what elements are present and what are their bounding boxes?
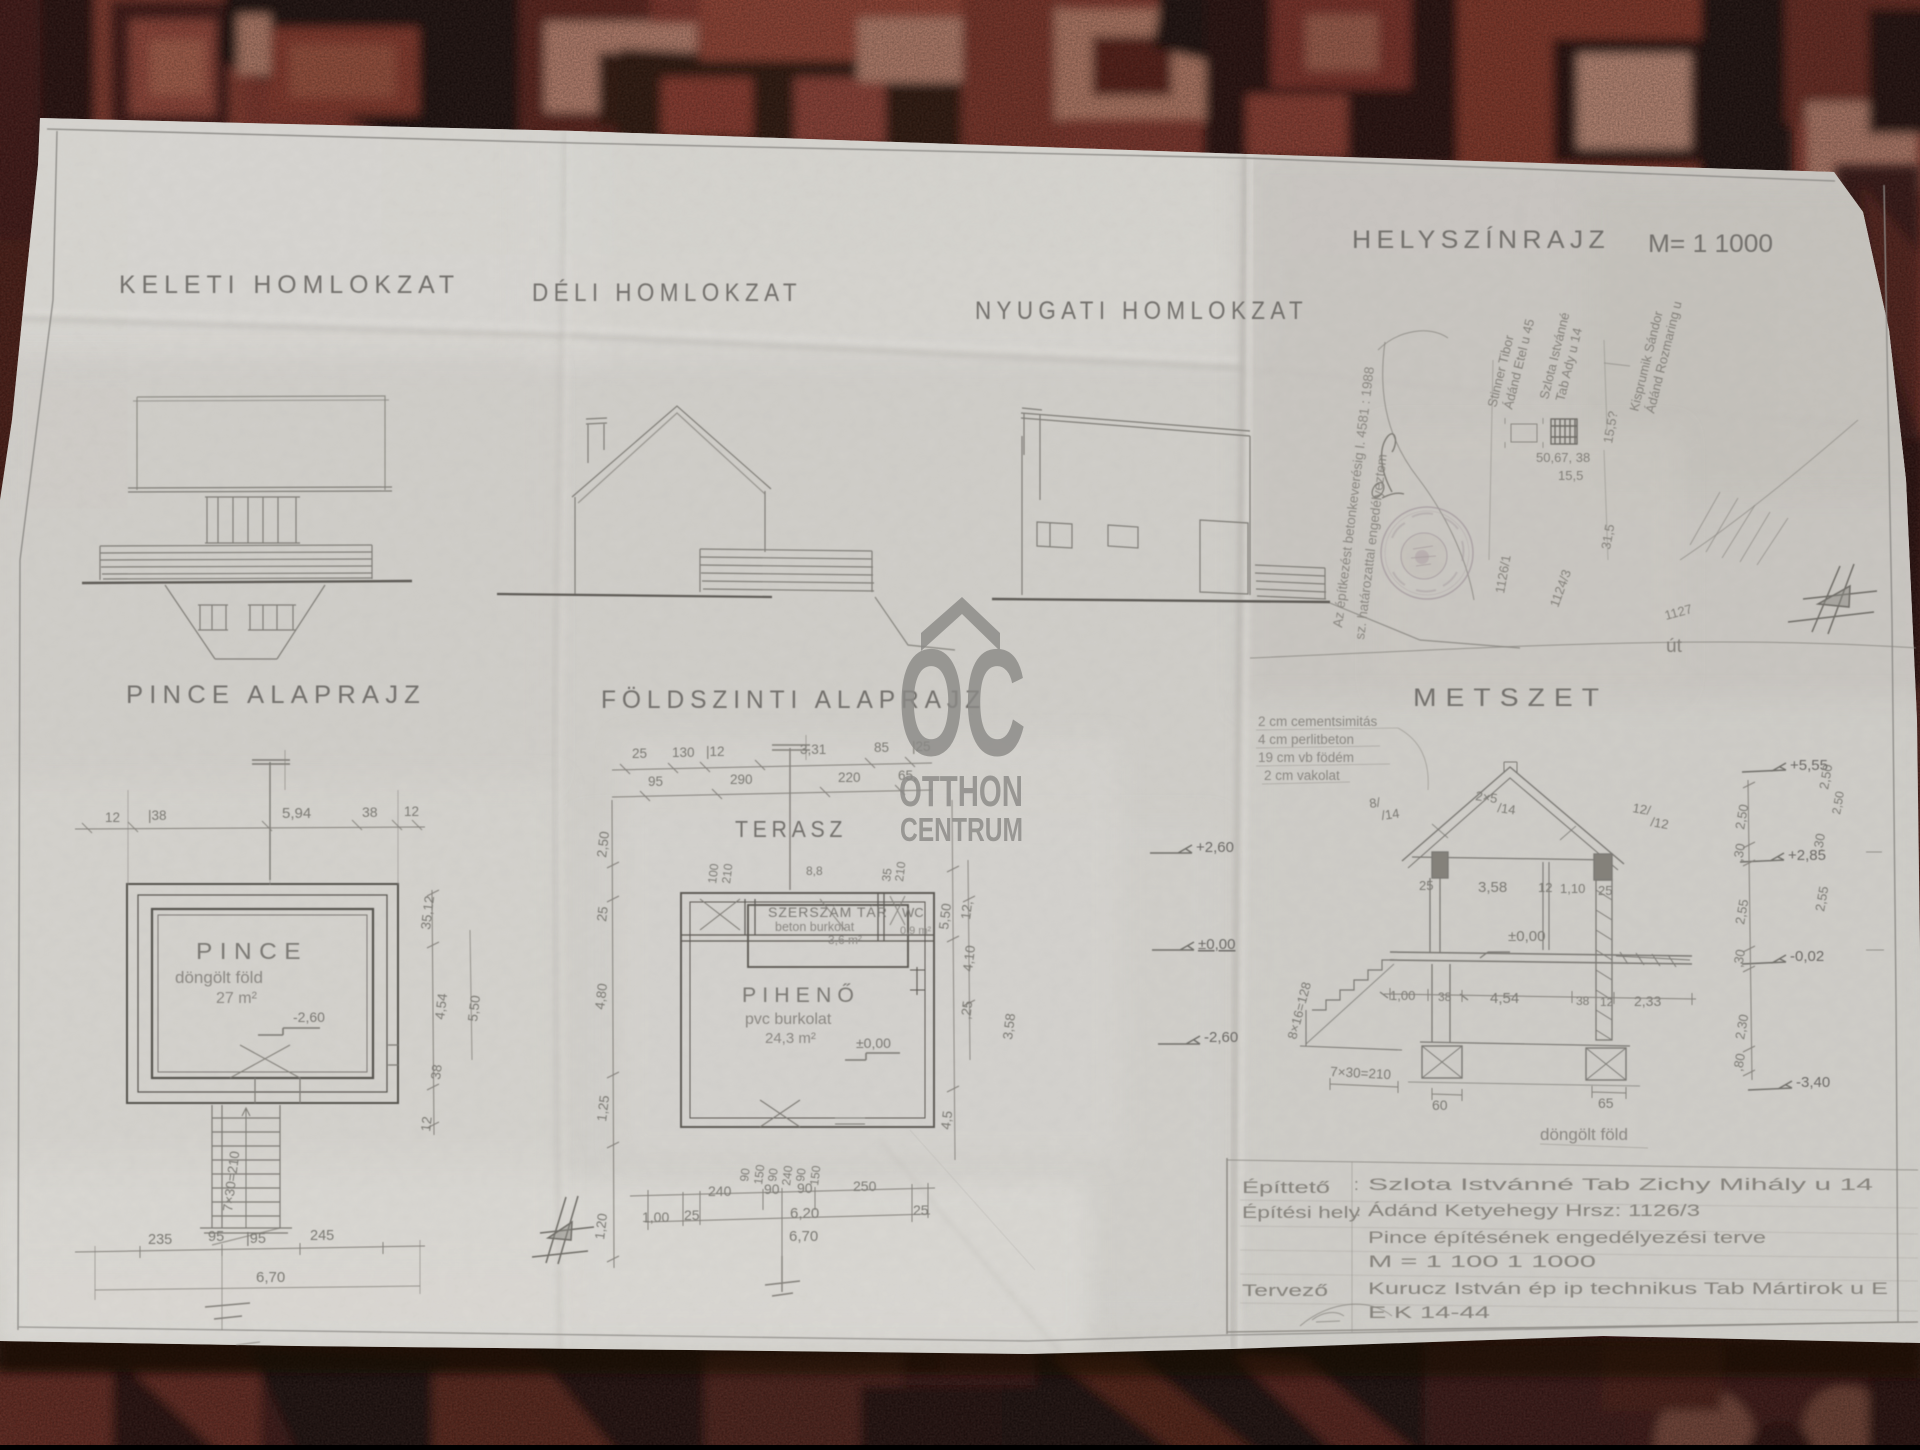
- svg-text:döngölt föld: döngölt föld: [1540, 1125, 1628, 1144]
- svg-text:60: 60: [1432, 1097, 1448, 1113]
- svg-text:12: 12: [404, 804, 419, 819]
- svg-text:döngölt föld: döngölt föld: [175, 968, 263, 987]
- svg-text:95: 95: [208, 1229, 224, 1245]
- svg-text:,30: ,30: [1730, 948, 1748, 968]
- svg-text::: :: [1354, 1175, 1359, 1194]
- svg-text:290: 290: [730, 772, 753, 787]
- svg-text:±0,00: ±0,00: [856, 1035, 891, 1051]
- svg-text:±0,00: ±0,00: [1508, 928, 1545, 945]
- svg-text:,30: ,30: [1730, 842, 1748, 862]
- svg-text:90: 90: [765, 1167, 781, 1182]
- svg-text:0,9 m²: 0,9 m²: [900, 925, 932, 937]
- svg-text:Kurucz István ép ip techniku: Kurucz István ép ip technikus Tab Mártir…: [1368, 1279, 1888, 1298]
- svg-text:25: 25: [1419, 878, 1433, 893]
- svg-text:7×30=210: 7×30=210: [1330, 1064, 1392, 1082]
- svg-text:Szlota Istvánné Tab Zichy: Szlota Istvánné Tab Zichy Mihály u 14: [1368, 1175, 1873, 1194]
- svg-text:1,00: 1,00: [642, 1209, 669, 1225]
- svg-text:27 m²: 27 m²: [216, 990, 258, 1007]
- svg-text:|95: |95: [246, 1231, 266, 1247]
- svg-text:Pince építésének engedélyezési: Pince építésének engedélyezési terve: [1368, 1228, 1766, 1247]
- svg-text:,25: ,25: [958, 1000, 975, 1020]
- svg-text:beton burkolat: beton burkolat: [775, 920, 855, 934]
- svg-text:OC: OC: [898, 618, 1026, 788]
- svg-text:5,50: 5,50: [465, 994, 483, 1022]
- svg-text:4 cm perlitbeton: 4 cm perlitbeton: [1258, 732, 1354, 747]
- svg-text:5,50: 5,50: [936, 902, 954, 930]
- svg-text:/14: /14: [1497, 800, 1517, 817]
- svg-text:4,10: 4,10: [960, 944, 978, 972]
- svg-text:/14: /14: [1380, 806, 1400, 823]
- svg-text:1,10: 1,10: [1560, 881, 1585, 896]
- svg-text:8,8: 8,8: [806, 864, 823, 878]
- svg-text:2 cm cementsimitás: 2 cm cementsimitás: [1258, 714, 1378, 729]
- svg-text:NYUGATI HOMLOKZAT: NYUGATI HOMLOKZAT: [975, 297, 1308, 325]
- svg-text:19 cm vb födém: 19 cm vb födém: [1258, 750, 1354, 765]
- svg-text:,80: ,80: [1730, 1052, 1748, 1072]
- svg-text:12/: 12/: [1631, 800, 1652, 818]
- svg-text:6,70: 6,70: [789, 1228, 818, 1245]
- svg-text:65: 65: [1598, 1095, 1614, 1111]
- svg-text:±0,00: ±0,00: [1198, 936, 1235, 953]
- svg-text::: :: [1356, 1201, 1361, 1220]
- svg-text:95: 95: [648, 774, 663, 789]
- svg-text:12: 12: [105, 810, 120, 825]
- svg-text:2 cm vakolat: 2 cm vakolat: [1264, 768, 1340, 783]
- svg-text:38: 38: [1438, 990, 1452, 1004]
- svg-text:/12: /12: [1649, 814, 1669, 832]
- svg-text:38: 38: [1576, 994, 1590, 1008]
- svg-text:3,58: 3,58: [1478, 879, 1507, 896]
- svg-text:KELETI HOMLOKZAT: KELETI HOMLOKZAT: [119, 271, 460, 299]
- svg-text:+2,60: +2,60: [1196, 839, 1234, 856]
- svg-text:2,50: 2,50: [594, 830, 612, 858]
- svg-text:TERASZ: TERASZ: [735, 816, 847, 842]
- svg-text:25: 25: [1598, 883, 1612, 898]
- svg-text:2×5: 2×5: [1475, 788, 1499, 806]
- svg-text:250: 250: [853, 1178, 877, 1194]
- svg-text:6,20: 6,20: [790, 1205, 819, 1222]
- svg-text:25: 25: [632, 746, 647, 761]
- svg-text:pvc burkolat: pvc burkolat: [745, 1011, 832, 1028]
- svg-text:Ádánd Ketyehegy Hrsz: 112: Ádánd Ketyehegy Hrsz: 1126/3: [1368, 1201, 1700, 1220]
- svg-text:50,67, 38: 50,67, 38: [1536, 450, 1590, 465]
- svg-text:150: 150: [807, 1164, 823, 1186]
- svg-text:220: 220: [838, 770, 861, 785]
- svg-text:Tervező: Tervező: [1242, 1281, 1328, 1300]
- svg-text:90: 90: [764, 1181, 780, 1197]
- svg-text:E K 14-44: E K 14-44: [1368, 1303, 1490, 1322]
- svg-text:85: 85: [874, 740, 889, 755]
- svg-text:130: 130: [672, 745, 695, 760]
- svg-text:1,25: 1,25: [594, 1094, 612, 1122]
- svg-text:4,54: 4,54: [1490, 990, 1519, 1007]
- svg-text:4,80: 4,80: [592, 982, 610, 1010]
- svg-text:-3,40: -3,40: [1796, 1074, 1830, 1091]
- svg-text:90: 90: [737, 1167, 753, 1182]
- svg-text:12,: 12,: [958, 900, 975, 920]
- svg-text:1,20: 1,20: [592, 1212, 610, 1240]
- svg-text:|12: |12: [706, 744, 725, 759]
- svg-text:235: 235: [148, 1232, 172, 1248]
- svg-text:25: 25: [684, 1207, 700, 1223]
- svg-text:6,70: 6,70: [256, 1269, 285, 1286]
- svg-text:út: út: [1666, 636, 1683, 657]
- svg-text:HELYSZÍNRAJZ: HELYSZÍNRAJZ: [1352, 225, 1610, 254]
- svg-text:245: 245: [310, 1228, 334, 1244]
- svg-text:38: 38: [428, 1064, 445, 1081]
- svg-text:240: 240: [708, 1183, 732, 1199]
- svg-text:-0,02: -0,02: [1790, 948, 1824, 965]
- svg-text:-2,60: -2,60: [293, 1009, 325, 1025]
- svg-text:5,94: 5,94: [282, 805, 311, 822]
- svg-text:12: 12: [418, 1116, 435, 1133]
- svg-text:1,00: 1,00: [1390, 988, 1415, 1003]
- svg-text:15,5: 15,5: [1558, 468, 1583, 483]
- svg-text:38: 38: [362, 804, 378, 820]
- svg-text:PIHENŐ: PIHENŐ: [742, 984, 860, 1007]
- svg-text:2,33: 2,33: [1634, 993, 1661, 1009]
- svg-text:4,5: 4,5: [938, 1110, 955, 1130]
- svg-text:3,6 m²: 3,6 m²: [828, 933, 862, 947]
- svg-text:210: 210: [892, 860, 908, 882]
- svg-text:,30: ,30: [1810, 832, 1828, 852]
- svg-text:M = 1 100 1 1000: M = 1 100 1 1000: [1368, 1252, 1596, 1271]
- svg-text:12: 12: [1538, 880, 1552, 895]
- svg-text:24,3 m²: 24,3 m²: [765, 1030, 816, 1047]
- svg-text:90: 90: [793, 1167, 809, 1182]
- svg-text:25: 25: [913, 1202, 929, 1218]
- svg-text:3,58: 3,58: [1000, 1012, 1018, 1040]
- svg-text:DÉLI HOMLOKZAT: DÉLI HOMLOKZAT: [532, 278, 802, 307]
- svg-text:OTTHON: OTTHON: [899, 767, 1023, 816]
- svg-text:M= 1 1000: M= 1 1000: [1648, 230, 1773, 258]
- svg-text:25: 25: [594, 906, 611, 923]
- svg-text:CENTRUM: CENTRUM: [900, 811, 1023, 848]
- svg-text:Építtető: Építtető: [1242, 1178, 1330, 1197]
- svg-text:210: 210: [719, 862, 735, 884]
- svg-text:-2,60: -2,60: [1204, 1029, 1238, 1046]
- svg-text:SZERSZÁM TÁR: SZERSZÁM TÁR: [768, 904, 888, 920]
- svg-text:METSZET: METSZET: [1413, 684, 1608, 712]
- svg-text:PINCE: PINCE: [196, 938, 308, 964]
- svg-text:WC: WC: [902, 905, 924, 920]
- svg-text:Építési hely: Építési hely: [1242, 1203, 1361, 1222]
- svg-text:PINCE ALAPRAJZ: PINCE ALAPRAJZ: [126, 681, 426, 709]
- svg-text:|38: |38: [148, 808, 167, 823]
- svg-text:3,31: 3,31: [800, 742, 826, 757]
